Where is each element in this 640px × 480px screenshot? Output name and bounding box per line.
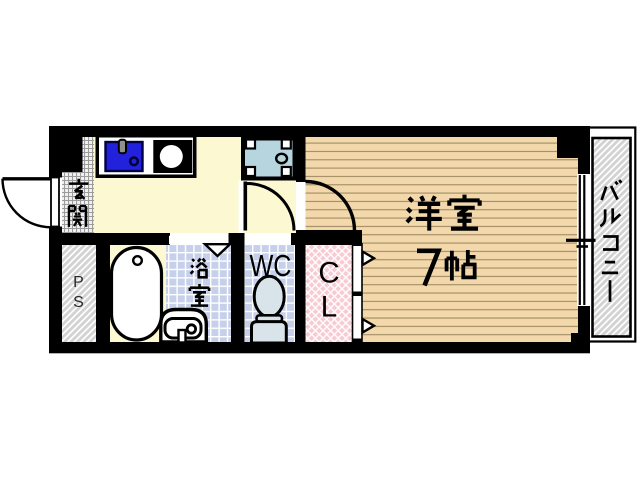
svg-text:S: S: [73, 294, 84, 311]
svg-text:C: C: [318, 257, 339, 290]
svg-text:P: P: [73, 274, 84, 291]
svg-text:L: L: [321, 291, 337, 324]
